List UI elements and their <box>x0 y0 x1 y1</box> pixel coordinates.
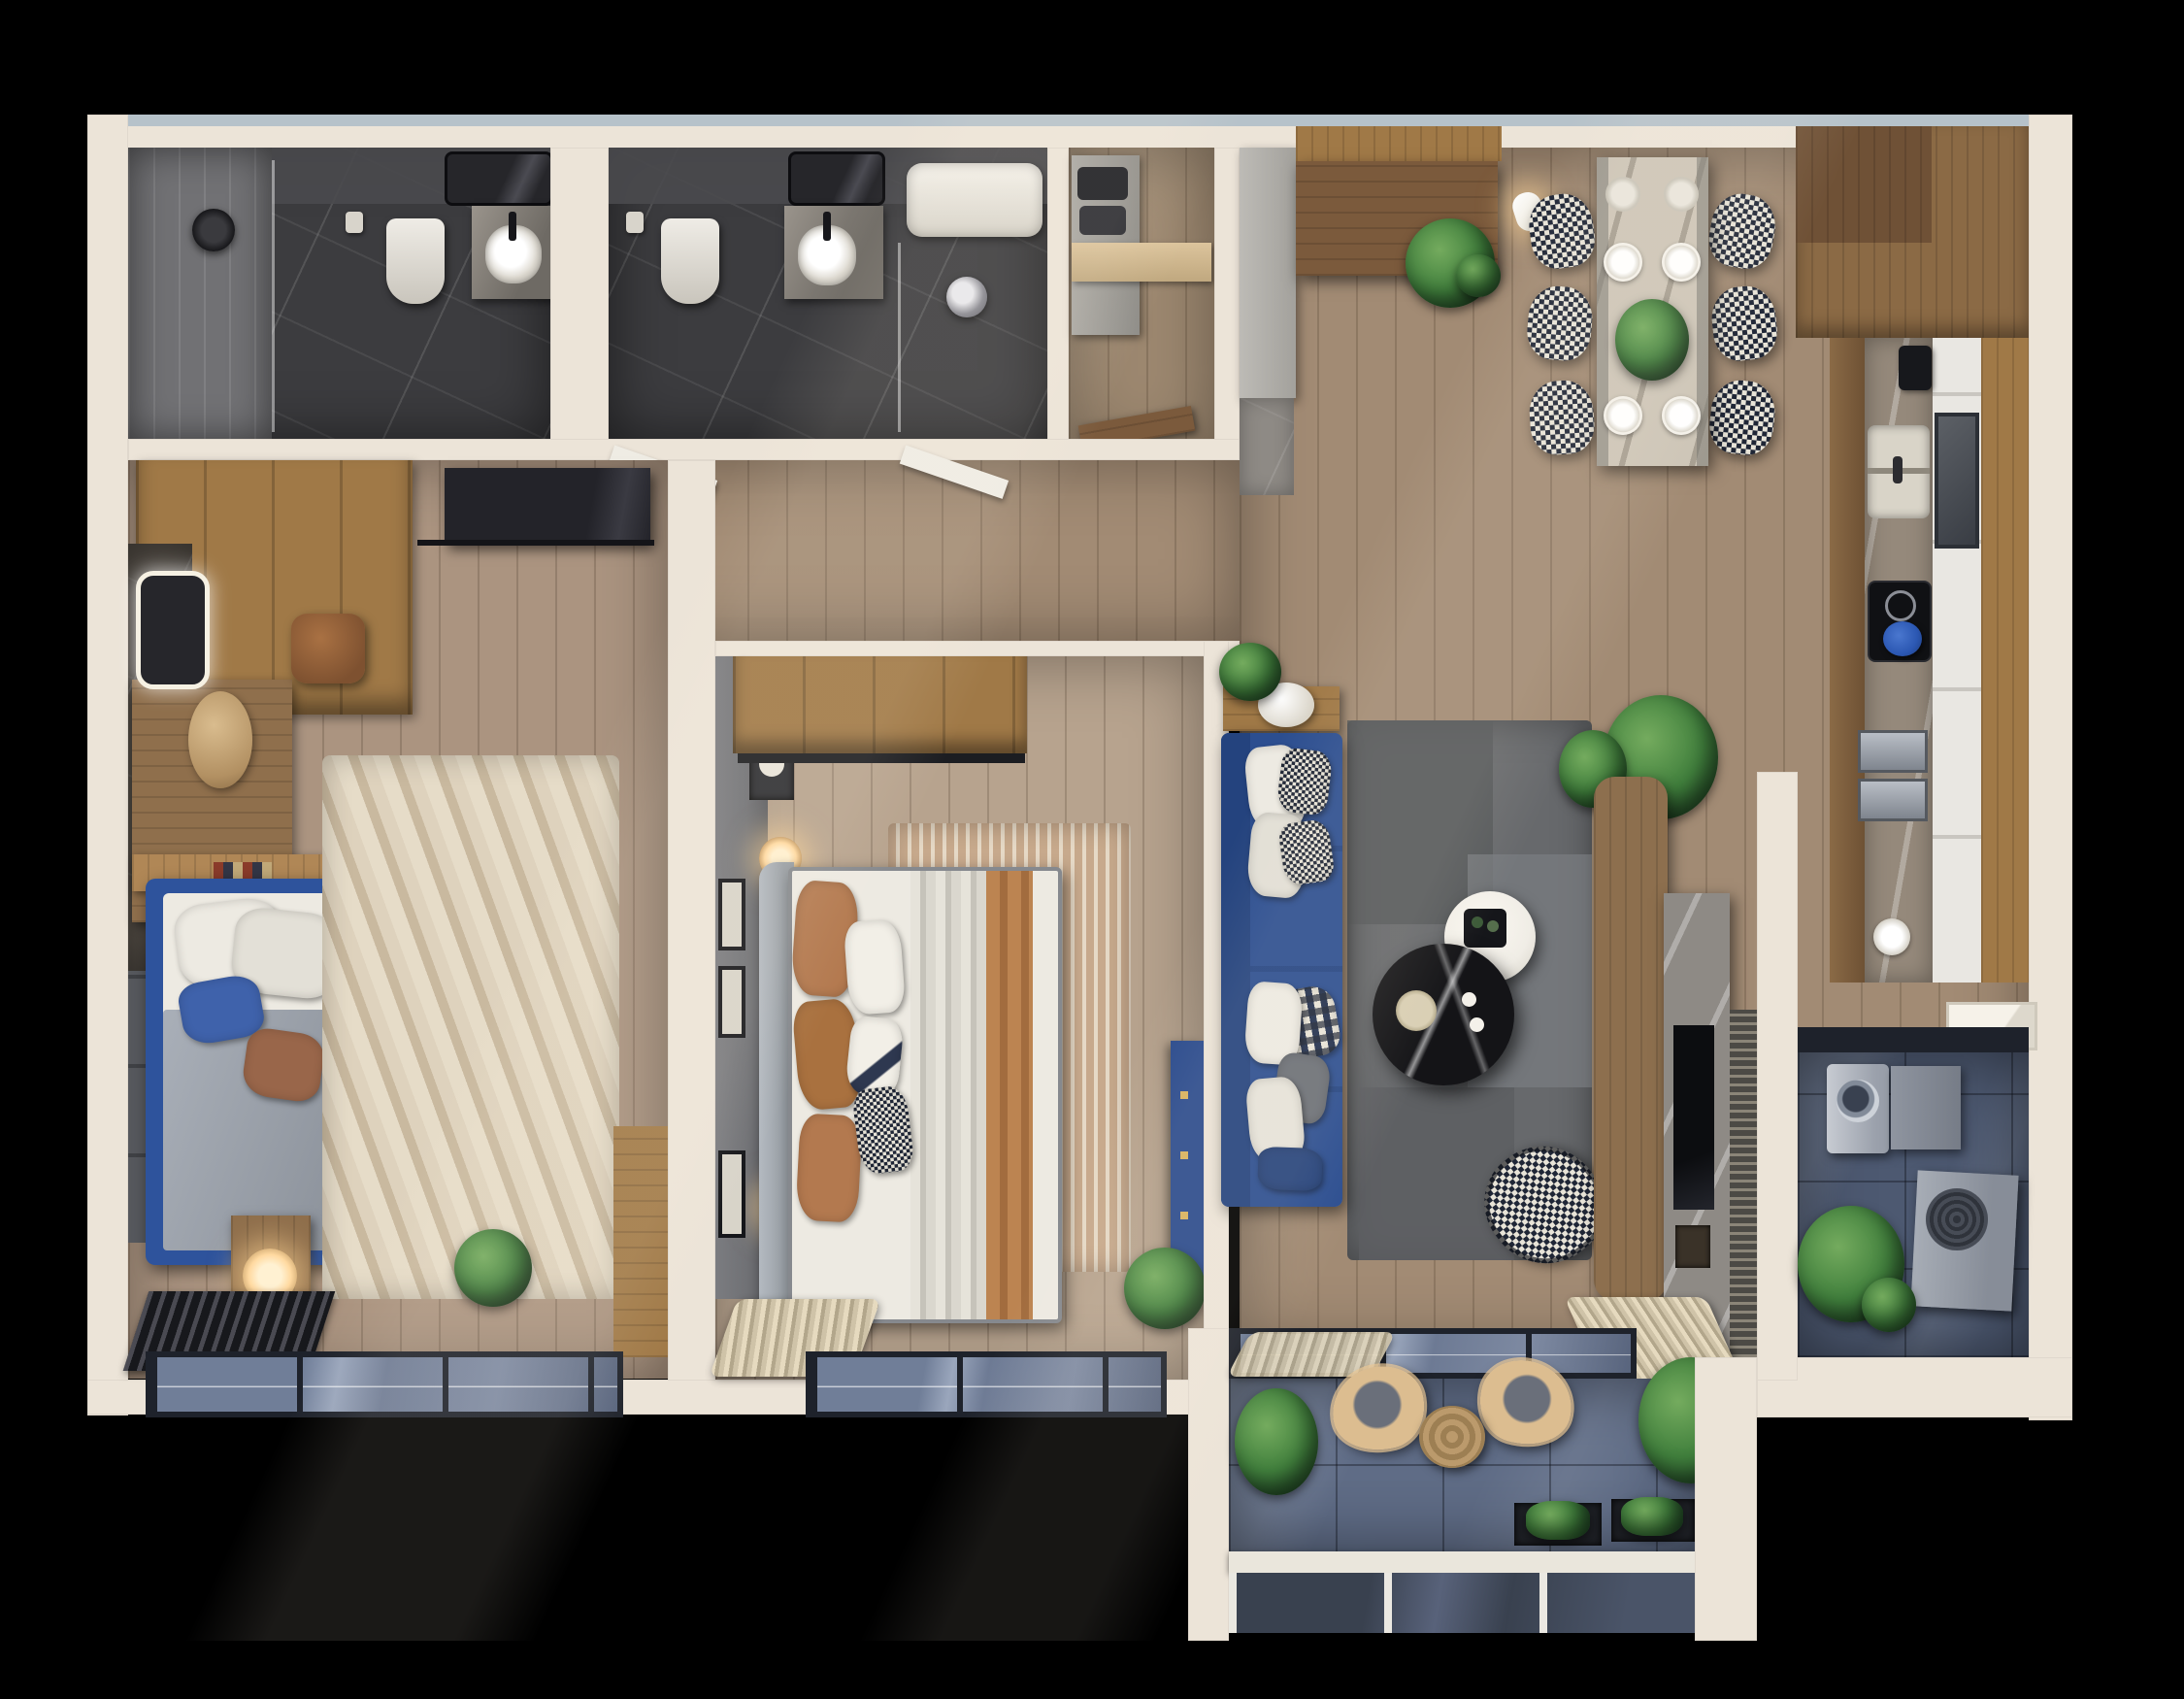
wall-bathroom-divider <box>550 148 609 459</box>
built-in-oven <box>1858 730 1928 773</box>
cooktop-ring-icon <box>1885 590 1916 621</box>
bedroom1-sunburst-rug <box>322 755 619 1299</box>
bedroom1-floor-plant <box>454 1229 532 1307</box>
bedroom2-dresser-knobs-icon <box>1180 1066 1188 1280</box>
place-setting-plate <box>1662 243 1701 282</box>
wall-left <box>87 115 128 1416</box>
coffee-machine-icon <box>1899 346 1932 390</box>
sofa-pillow-blue <box>1257 1147 1322 1191</box>
balcony-plant-left <box>1235 1388 1318 1495</box>
bedroom2-bay-window <box>806 1351 1167 1417</box>
sofa-pillow-check <box>1275 747 1334 816</box>
utility-window-track <box>1798 1027 2029 1052</box>
bathroom1-glass-line <box>272 160 275 432</box>
bedroom2-wardrobe <box>733 656 1027 753</box>
fireplace-niche-icon <box>1675 1225 1710 1268</box>
bedroom1-bay-window <box>146 1351 623 1417</box>
bedroom2-wardrobe-rail-icon <box>738 753 1025 763</box>
balcony-glass-balustrade <box>1229 1573 1695 1633</box>
bedroom2-pillow-white <box>844 918 907 1016</box>
bedroom1-pampas-plant <box>188 691 252 788</box>
living-sofa-backrest <box>1221 733 1250 1207</box>
living-slatted-screen <box>1730 1010 1757 1357</box>
bedroom1-wood-column <box>613 1126 668 1357</box>
living-coffee-table-black <box>1373 944 1514 1085</box>
entry-marble-mat <box>1240 398 1294 495</box>
closet-shelf <box>1072 243 1211 282</box>
fireplace-tv-screen <box>1673 1025 1714 1210</box>
bathroom2-paper-holder-icon <box>626 212 644 233</box>
bathroom2-bathtub <box>907 163 1042 237</box>
living-media-panel <box>1594 777 1668 1301</box>
wall-corridor-south <box>715 641 1240 656</box>
built-in-oven <box>1858 779 1928 821</box>
washer-door-icon <box>1837 1080 1879 1122</box>
wall-bath2-closet <box>1047 148 1069 459</box>
bathroom2-shower-head-icon <box>946 277 987 317</box>
kitchen-glass-cabinet <box>1935 413 1979 549</box>
bedroom2-floor-plant <box>1124 1248 1206 1329</box>
place-setting-plate <box>1662 396 1701 435</box>
floor-plan-render <box>0 0 2184 1699</box>
place-setting-plate <box>1605 177 1640 212</box>
bedroom2-framed-art <box>718 1150 745 1238</box>
entry-tall-cabinet <box>1240 148 1296 398</box>
rain-shower-head-icon <box>192 209 235 251</box>
dining-centerpiece-plant <box>1615 299 1689 381</box>
ac-fan-grille-icon <box>1926 1188 1988 1250</box>
bedroom2-framed-art <box>718 879 745 950</box>
balcony-parapet-rail <box>1229 1551 1695 1573</box>
bedroom2-sheet-folds <box>910 871 994 1319</box>
coffee-table-tray-icon <box>1396 990 1437 1031</box>
balcony-left-jamb <box>1188 1328 1229 1641</box>
bedroom1-leather-pouf <box>291 614 365 683</box>
wall-between-bedrooms <box>668 460 715 1381</box>
bedroom2-framed-art <box>718 966 745 1038</box>
bathroom1-faucet-icon <box>509 212 516 241</box>
plate-stack-icon <box>1873 918 1910 955</box>
rattan-side-table <box>1419 1406 1485 1468</box>
tray-bottle-icon <box>1487 920 1499 932</box>
entry-top-trim <box>1296 126 1502 161</box>
bathroom2-faucet-icon <box>823 212 831 241</box>
entry-monstera-leaf <box>1456 254 1501 297</box>
living-console-plant <box>1219 643 1281 701</box>
tray-bottle-icon <box>1472 916 1483 928</box>
bedroom1-tv <box>445 468 650 544</box>
kitchen-faucet-icon <box>1893 456 1903 483</box>
corridor-floor <box>631 460 1240 641</box>
bedroom1-tv-rail-icon <box>417 540 654 546</box>
bathroom1-mirror <box>445 151 553 206</box>
bedroom2-tan-throw <box>986 871 1033 1319</box>
bedroom2-pillow-graphic <box>844 1015 905 1097</box>
blue-dutch-oven <box>1883 621 1922 656</box>
bedroom1-led-mirror <box>136 571 210 689</box>
wall-bottom-east <box>1757 1357 2072 1417</box>
wall-top-highlight <box>87 115 2072 126</box>
place-setting-plate <box>1604 243 1642 282</box>
bathroom2-glass-line <box>898 243 901 432</box>
closet-appliance2-icon <box>1079 206 1126 235</box>
closet-appliance-icon <box>1077 167 1128 200</box>
bathroom2-mirror <box>788 151 885 206</box>
bathroom1-toilet <box>386 218 445 304</box>
coffee-table-cup-icon <box>1470 1017 1484 1032</box>
wall-living-utility <box>1757 772 1798 1381</box>
bathroom1-paper-holder-icon <box>346 212 363 233</box>
bedroom2-pillow-tan <box>795 1113 863 1222</box>
balcony-planter-plant <box>1621 1497 1683 1536</box>
balcony-right-wall <box>1695 1357 1757 1641</box>
bathroom2-toilet <box>661 218 719 304</box>
balcony-planter-plant <box>1526 1501 1590 1540</box>
utility-cabinet <box>1891 1066 1961 1149</box>
coffee-table-cup-icon <box>1462 992 1476 1007</box>
kitchen-upper-band <box>1981 338 2029 983</box>
wall-below-bathrooms <box>128 439 1240 460</box>
place-setting-plate <box>1604 396 1642 435</box>
wall-right <box>2029 115 2072 1420</box>
kitchen-base-cabinet-edge <box>1830 338 1865 983</box>
bathroom1-shower-tiles <box>128 148 272 441</box>
kitchen-tall-cabinets-dark <box>1796 126 1932 243</box>
side-table-tray-icon <box>1464 909 1506 948</box>
place-setting-plate <box>1664 177 1699 212</box>
utility-plant-leaf <box>1862 1278 1916 1332</box>
